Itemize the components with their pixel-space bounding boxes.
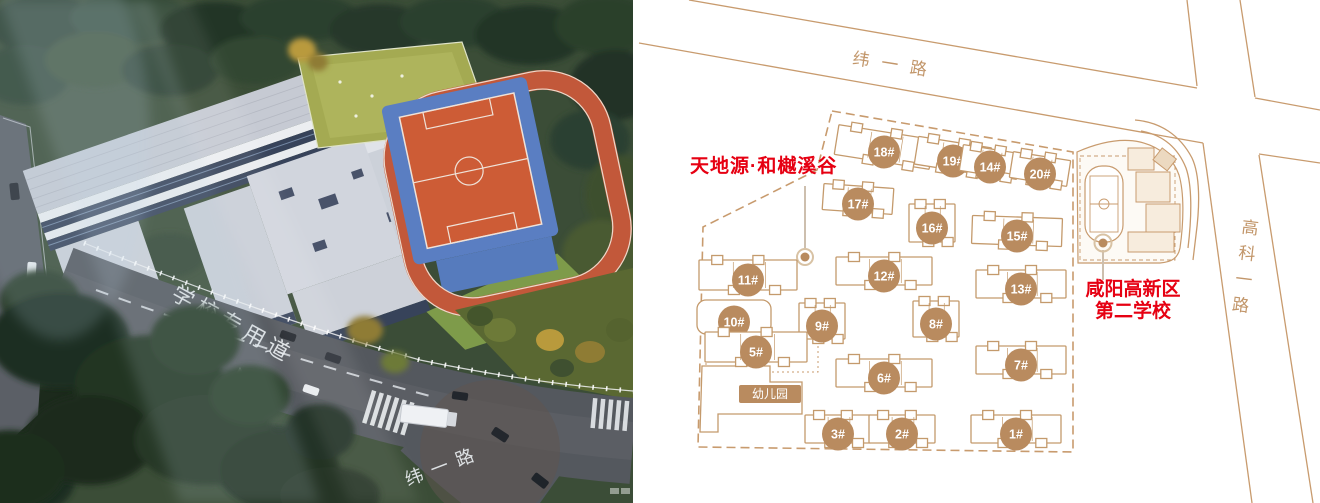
building-badge-label: 8# <box>929 318 943 332</box>
school-track <box>1085 166 1123 242</box>
footprint-notch <box>1021 411 1032 420</box>
footprint-notch <box>988 266 999 275</box>
footprint-notch <box>805 299 816 308</box>
footprint-notch <box>915 200 926 209</box>
footprint-notch <box>761 328 772 337</box>
footprint-notch <box>1041 294 1052 303</box>
footprint-notch <box>851 122 863 133</box>
footprint-notch <box>1026 266 1037 275</box>
building-badge-label: 2# <box>895 428 909 442</box>
footprint-notch <box>905 383 916 392</box>
footprint-notch <box>712 256 723 265</box>
building-badge-label: 6# <box>877 372 891 386</box>
footprint-notch <box>1026 342 1037 351</box>
footprint-notch <box>938 297 949 306</box>
footprint-notch <box>770 286 781 295</box>
footprint-notch <box>824 299 835 308</box>
building-badge-label: 5# <box>749 346 763 360</box>
building-badge-label: 13# <box>1011 283 1032 297</box>
aerial-photo: 学校专用道 纬一路 <box>0 0 633 503</box>
building-badge-label: 17# <box>848 198 869 212</box>
footprint-notch <box>1022 213 1033 222</box>
footprint-notch <box>814 411 825 420</box>
footprint-notch <box>970 141 982 152</box>
footprint-notch <box>718 328 729 337</box>
footprint-notch <box>934 200 945 209</box>
building-badge-label: 16# <box>922 222 943 236</box>
footprint-notch <box>853 439 864 448</box>
kindergarten-label: 幼儿园 <box>739 385 801 403</box>
footprint-notch <box>848 355 859 364</box>
project-name-label: 天地源·和樾溪谷 <box>690 151 837 178</box>
footprint-notch <box>833 180 845 190</box>
building-badge-label: 12# <box>874 270 895 284</box>
footprint-notch <box>927 133 939 144</box>
footprint-notch <box>778 358 789 367</box>
building-badge-label: 20# <box>1030 168 1051 182</box>
footprint-notch <box>983 411 994 420</box>
footprint-notch <box>889 355 900 364</box>
footprint-notch <box>872 209 884 219</box>
building-badge-label: 14# <box>980 161 1001 175</box>
building-11: 11# <box>699 256 797 297</box>
building-16: 16# <box>909 200 955 247</box>
project-marker-dot <box>801 253 810 262</box>
footprint-notch <box>890 128 902 139</box>
footprint-notch <box>848 253 859 262</box>
building-8: 8# <box>913 297 959 342</box>
footprint-notch <box>1041 370 1052 379</box>
building-badge-label: 1# <box>1009 428 1023 442</box>
brochure-page: 学校专用道 纬一路 <box>0 0 1320 503</box>
footprint-notch <box>1036 439 1047 448</box>
school-name-line1: 咸阳高新区 <box>1068 279 1198 301</box>
footprint-notch <box>878 411 889 420</box>
footprint-notch <box>984 211 995 220</box>
building-badge-label: 18# <box>874 146 895 160</box>
building-badge-label: 11# <box>738 274 758 288</box>
footprint-notch <box>753 256 764 265</box>
school-name-line2: 第二学校 <box>1068 301 1198 323</box>
building-5: 5# <box>705 328 807 369</box>
building-badge-label: 9# <box>815 320 829 334</box>
footprint-notch <box>917 439 928 448</box>
footprint-notch <box>902 161 914 172</box>
footprint-notch <box>919 297 930 306</box>
building-badge-label: 3# <box>831 428 845 442</box>
footprint-notch <box>905 411 916 420</box>
school-marker-dot <box>1099 239 1108 248</box>
footprint-notch <box>905 281 916 290</box>
footprint-notch <box>988 342 999 351</box>
footprint-notch <box>1020 148 1032 159</box>
site-plan: 18#19#14#20#17#16#15#11#12#13#10#9#8#5#7… <box>633 0 1320 503</box>
school-name-label: 咸阳高新区 第二学校 <box>1068 279 1198 323</box>
footprint-notch <box>1036 241 1047 250</box>
building-badge-label: 15# <box>1007 230 1028 244</box>
footprint-notch <box>889 253 900 262</box>
building-badge-label: 7# <box>1014 359 1028 373</box>
footprint-notch <box>841 411 852 420</box>
